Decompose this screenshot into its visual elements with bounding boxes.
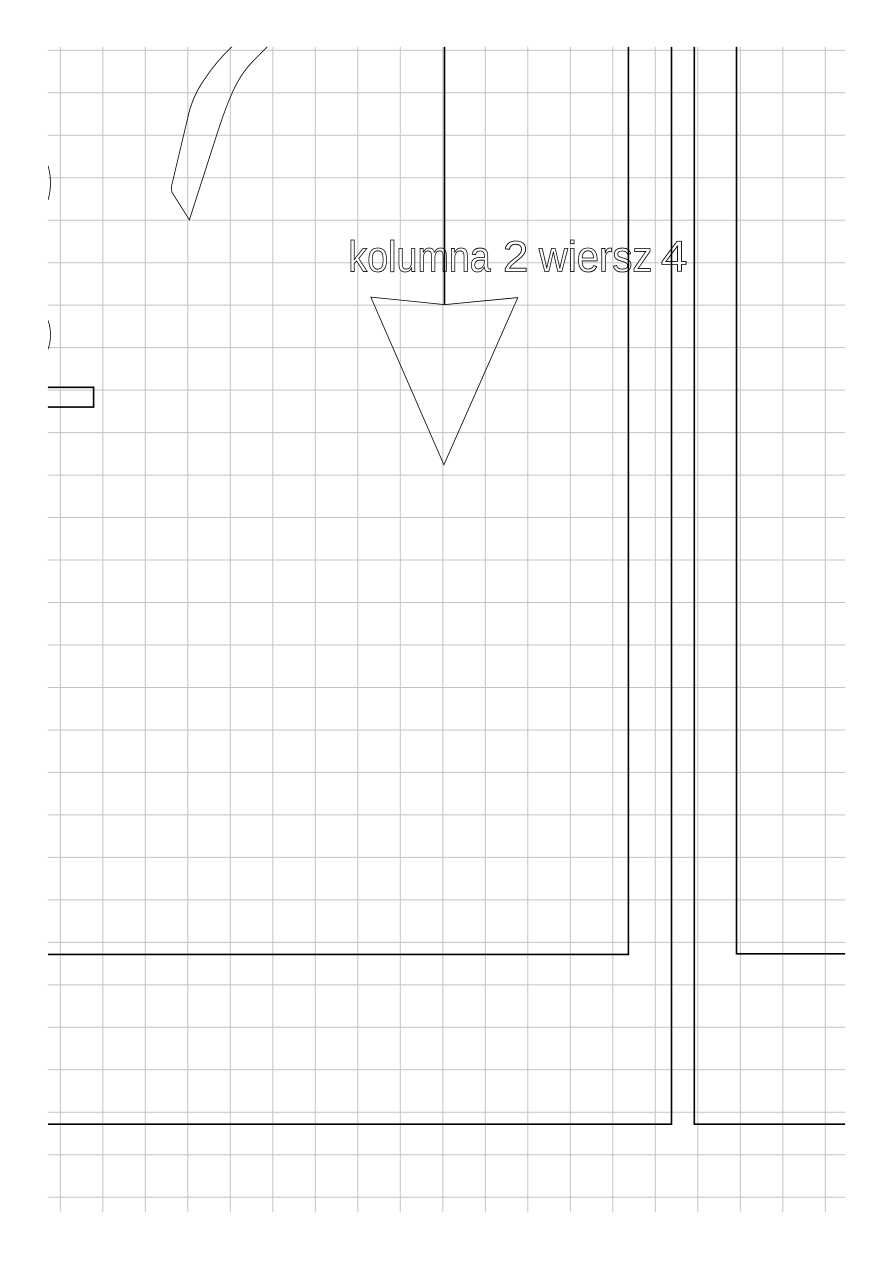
svg-text:wiersz: wiersz xyxy=(538,233,652,282)
svg-text:2: 2 xyxy=(503,233,529,282)
svg-text:4: 4 xyxy=(661,233,688,282)
svg-text:kolumna: kolumna xyxy=(348,233,491,282)
